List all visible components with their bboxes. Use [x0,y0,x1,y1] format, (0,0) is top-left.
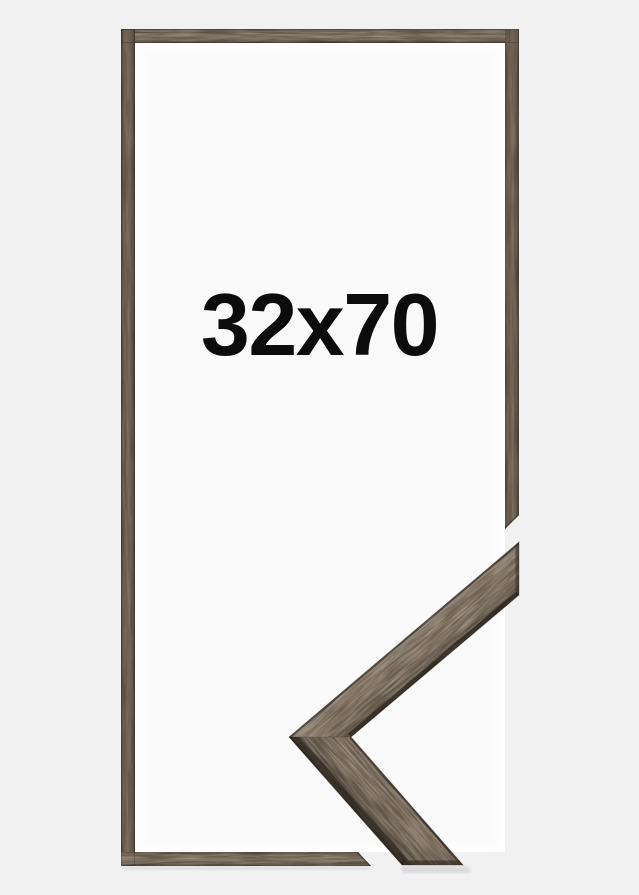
frame-graphic [0,0,639,895]
frame-outline-bottom [121,852,371,866]
bottom-strip-shadow [122,866,370,870]
frame-product-image: 32x70 [0,0,639,895]
size-label: 32x70 [0,281,639,369]
corner-sample-shadow [402,866,472,873]
frame-outline-right [505,29,519,530]
frame-outline-top [121,29,519,43]
frame-outline-left [121,29,135,866]
